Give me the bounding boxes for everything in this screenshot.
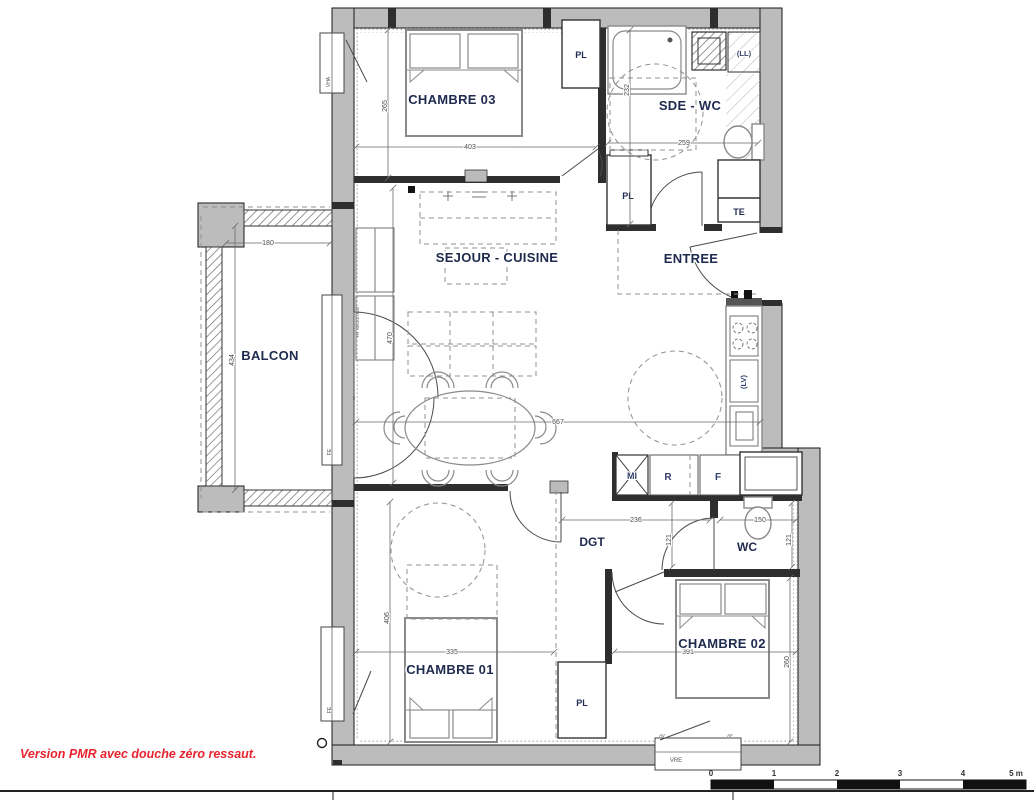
kitchen-lower-row: MI R F xyxy=(616,452,802,495)
dining-table xyxy=(384,372,556,486)
dim-dgt-width: 236 xyxy=(630,517,642,524)
room-label-entree: ENTREE xyxy=(664,251,719,266)
door-chambre03 xyxy=(562,149,602,176)
dim-chambre02-height: 260 xyxy=(784,656,791,668)
shower xyxy=(608,26,686,94)
te-closet: TE xyxy=(718,160,760,222)
te-label: TE xyxy=(733,207,745,217)
scale-tick-5m: 5 m xyxy=(1009,769,1023,778)
dim-wc-height: 121 xyxy=(786,534,793,546)
dim-sde-height: 232 xyxy=(624,84,631,96)
dishwasher-label: (LV) xyxy=(739,374,748,389)
window-mark-af: AF xyxy=(727,733,733,738)
pmr-circle-chambre01 xyxy=(391,503,485,597)
dim-chambre01-width: 335 xyxy=(446,649,458,656)
scale-tick-3: 3 xyxy=(898,769,903,778)
dim-sde-width: 259 xyxy=(678,140,690,147)
pl-label-sde: PL xyxy=(622,191,634,201)
sofa-dashed xyxy=(408,312,536,376)
window-tag-chambre03: VHA xyxy=(326,76,332,87)
window-tag-balcon-fe: FE xyxy=(327,448,333,455)
drain-mark xyxy=(318,739,327,748)
scale-tick-2: 2 xyxy=(835,769,840,778)
scale-tick-0: 0 xyxy=(709,769,714,778)
window-mark-av: AV xyxy=(659,733,665,738)
chambre01-dashed-zone xyxy=(407,565,497,619)
kitchen-counter-dashed xyxy=(420,191,556,284)
pl-label-chambre02: PL xyxy=(576,698,588,708)
door-chambre02 xyxy=(612,572,664,624)
room-label-chambre03: CHAMBRE 03 xyxy=(408,92,496,107)
room-label-chambre01: CHAMBRE 01 xyxy=(406,662,494,677)
window-chambre03: VHA xyxy=(320,33,367,93)
dim-dgt-height: 121 xyxy=(666,534,673,546)
fridge-label: R xyxy=(664,472,672,483)
door-sde-wc xyxy=(648,172,702,226)
pl-label-chambre03: PL xyxy=(575,50,587,60)
floor-plan-sheet: VHA FE HT SEUIL 0.03 FE VRE AV AF xyxy=(0,0,1034,800)
room-label-sejour-cuisine: SEJOUR - CUISINE xyxy=(436,250,559,265)
kitchen-column: (LV) xyxy=(726,290,762,455)
bed-chambre03 xyxy=(406,30,522,136)
pmr-version-note: Version PMR avec douche zéro ressaut. xyxy=(20,747,256,761)
bed-chambre01 xyxy=(405,618,497,742)
dim-balcon-height: 434 xyxy=(229,354,236,366)
door-chambre01 xyxy=(510,491,561,542)
dim-chambre03-height: 265 xyxy=(382,100,389,112)
pl-closet-chambre03: PL xyxy=(562,20,600,88)
dim-sejour-height: 470 xyxy=(387,332,394,344)
room-label-sde-wc: SDE - WC xyxy=(659,98,722,113)
dim-chambre03-width: 403 xyxy=(464,144,476,151)
scale-tick-4: 4 xyxy=(961,769,966,778)
dim-balcon-width: 180 xyxy=(262,240,274,247)
scale-tick-1: 1 xyxy=(772,769,777,778)
window-chambre02: VRE AV AF xyxy=(655,721,741,770)
room-label-wc: WC xyxy=(737,540,757,554)
floor-plan-drawing: VHA FE HT SEUIL 0.03 FE VRE AV AF xyxy=(0,0,1034,800)
window-tag-chambre02-vre: VRE xyxy=(670,758,682,764)
scale-bar: 0 1 2 3 4 5 m xyxy=(709,769,1026,789)
sheet-border xyxy=(0,791,1034,800)
dim-sejour-width: 667 xyxy=(552,419,564,426)
dim-wc-width: 150 xyxy=(754,517,766,524)
microwave-label: MI xyxy=(627,471,637,481)
window-tag-chambre01-fe: FE xyxy=(327,706,333,713)
pmr-circle-sejour xyxy=(628,351,722,445)
pl-closet-chambre02: PL xyxy=(558,662,606,738)
toilet-sde xyxy=(724,124,764,160)
room-label-dgt: DGT xyxy=(579,535,605,549)
washer-column: (LL) xyxy=(692,32,760,72)
room-label-balcon: BALCON xyxy=(241,348,298,363)
washer-label: (LL) xyxy=(737,49,752,58)
dim-chambre01-height: 406 xyxy=(384,612,391,624)
pl-closet-sde: PL xyxy=(607,150,651,225)
room-label-chambre02: CHAMBRE 02 xyxy=(678,636,766,651)
oven-label: F xyxy=(715,472,721,483)
window-balcony-door: FE HT SEUIL 0.03 xyxy=(322,295,438,478)
entry-door-opening xyxy=(758,227,784,306)
